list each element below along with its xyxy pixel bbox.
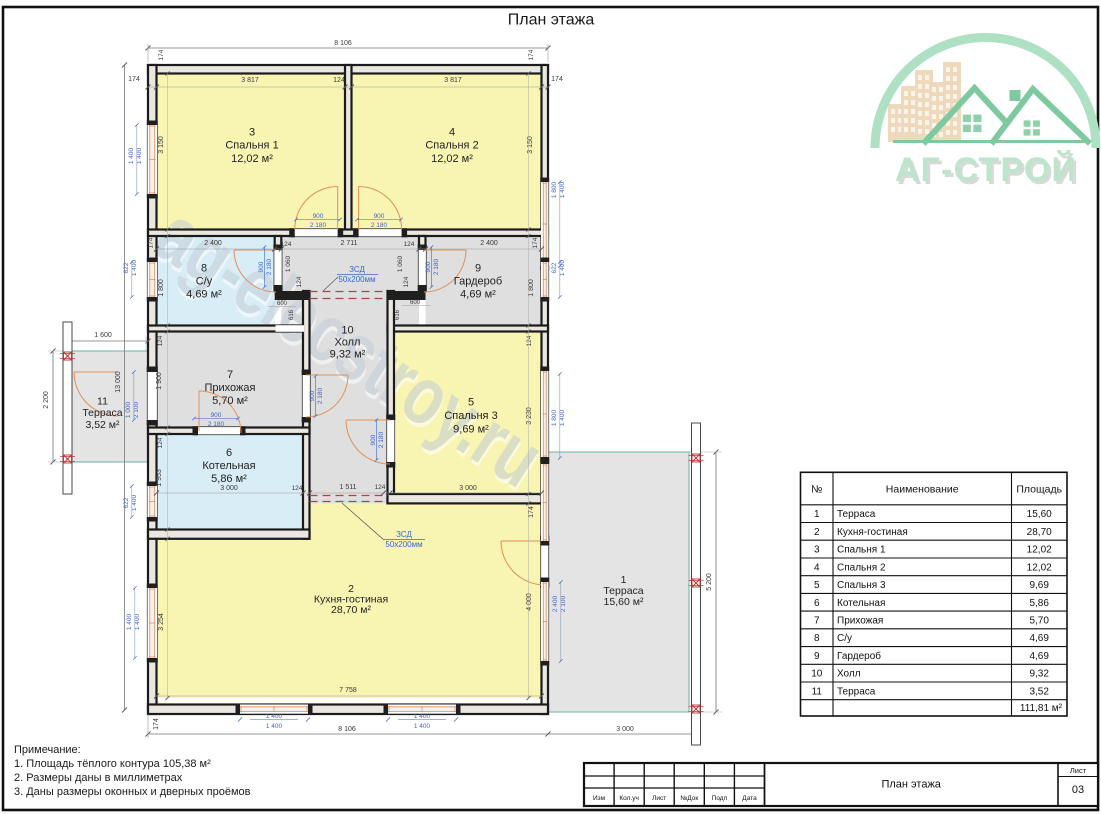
svg-text:5,86: 5,86 xyxy=(1029,598,1049,609)
svg-text:8: 8 xyxy=(814,633,820,644)
svg-text:1 800: 1 800 xyxy=(158,279,165,297)
svg-text:1 600: 1 600 xyxy=(94,332,112,339)
svg-text:№Док: №Док xyxy=(680,795,698,802)
svg-text:124: 124 xyxy=(526,335,533,346)
svg-text:3,52 м²: 3,52 м² xyxy=(85,419,120,431)
svg-text:9,69: 9,69 xyxy=(1029,580,1049,591)
svg-text:4,69 м²: 4,69 м² xyxy=(460,289,496,301)
svg-text:622: 622 xyxy=(123,497,130,508)
svg-text:Спальня 3: Спальня 3 xyxy=(444,410,497,422)
svg-text:5: 5 xyxy=(468,397,474,409)
svg-text:174: 174 xyxy=(158,49,165,60)
svg-text:7: 7 xyxy=(814,616,820,627)
svg-text:3: 3 xyxy=(814,545,820,556)
svg-text:2: 2 xyxy=(814,527,820,538)
svg-text:3. Даны размеры оконных и двер: 3. Даны размеры оконных и дверных проёмо… xyxy=(14,786,251,798)
svg-text:600: 600 xyxy=(277,301,288,307)
svg-text:2 180: 2 180 xyxy=(378,431,385,448)
svg-text:616: 616 xyxy=(289,309,295,320)
svg-text:Прихожая: Прихожая xyxy=(837,616,883,627)
svg-text:9: 9 xyxy=(814,651,820,662)
svg-text:Котельная: Котельная xyxy=(837,598,885,609)
svg-text:124: 124 xyxy=(375,484,386,491)
svg-text:Гардероб: Гардероб xyxy=(837,650,881,662)
svg-text:600: 600 xyxy=(410,300,421,306)
svg-text:124: 124 xyxy=(404,241,415,248)
svg-text:1 800: 1 800 xyxy=(551,181,558,198)
svg-text:Площадь: Площадь xyxy=(1016,484,1062,496)
svg-text:6: 6 xyxy=(814,598,820,609)
svg-text:ЗСД: ЗСД xyxy=(349,265,365,274)
svg-text:15,60 м²: 15,60 м² xyxy=(604,596,644,608)
svg-text:12,02 м²: 12,02 м² xyxy=(431,153,473,165)
svg-text:Терраса: Терраса xyxy=(82,407,122,419)
svg-text:4,69 м²: 4,69 м² xyxy=(186,289,222,301)
svg-text:174: 174 xyxy=(128,76,140,83)
svg-text:5,70 м²: 5,70 м² xyxy=(212,395,248,407)
svg-text:5,86 м²: 5,86 м² xyxy=(211,473,247,485)
svg-text:124: 124 xyxy=(157,335,164,346)
svg-text:Спальня 2: Спальня 2 xyxy=(425,140,478,152)
svg-text:174: 174 xyxy=(528,506,535,518)
svg-text:124: 124 xyxy=(403,276,410,287)
svg-text:3,52: 3,52 xyxy=(1029,686,1049,697)
svg-text:1 800: 1 800 xyxy=(551,409,558,426)
svg-text:Наименование: Наименование xyxy=(886,484,959,496)
svg-text:3 000: 3 000 xyxy=(616,726,634,733)
svg-text:Котельная: Котельная xyxy=(202,460,255,472)
svg-text:900: 900 xyxy=(309,390,316,401)
svg-text:9: 9 xyxy=(475,263,481,275)
svg-text:Подп: Подп xyxy=(712,795,728,802)
svg-text:1 060: 1 060 xyxy=(285,255,292,272)
svg-text:4: 4 xyxy=(814,562,820,573)
svg-text:4,69: 4,69 xyxy=(1029,651,1049,662)
svg-text:124: 124 xyxy=(157,437,164,448)
svg-text:1 800: 1 800 xyxy=(528,279,535,297)
svg-text:900: 900 xyxy=(211,412,222,419)
svg-text:616: 616 xyxy=(395,309,401,320)
svg-text:5: 5 xyxy=(814,580,820,591)
svg-text:1 060: 1 060 xyxy=(397,255,404,272)
svg-text:4: 4 xyxy=(449,127,455,139)
svg-text:124: 124 xyxy=(296,276,303,287)
svg-text:2 200: 2 200 xyxy=(43,391,50,409)
svg-text:10: 10 xyxy=(811,669,823,680)
svg-text:Спальня 1: Спальня 1 xyxy=(837,545,886,556)
svg-text:2 400: 2 400 xyxy=(204,240,222,247)
svg-text:8 106: 8 106 xyxy=(334,40,352,47)
svg-text:2 400: 2 400 xyxy=(552,595,559,612)
svg-text:Терраса: Терраса xyxy=(837,686,876,697)
svg-text:Примечание:: Примечание: xyxy=(14,744,81,756)
svg-text:12,02: 12,02 xyxy=(1027,562,1052,573)
svg-text:1 400: 1 400 xyxy=(414,723,431,730)
svg-text:1 400: 1 400 xyxy=(128,147,135,164)
svg-text:28,70: 28,70 xyxy=(1027,527,1052,538)
svg-text:Дата: Дата xyxy=(742,795,757,802)
svg-text:Прихожая: Прихожая xyxy=(205,382,256,394)
svg-text:50х200мм: 50х200мм xyxy=(385,540,422,549)
svg-text:1: 1 xyxy=(814,509,820,520)
svg-text:1 511: 1 511 xyxy=(340,484,357,491)
svg-text:1 400: 1 400 xyxy=(126,613,133,630)
svg-text:15,60: 15,60 xyxy=(1027,509,1052,520)
svg-text:9,32 м²: 9,32 м² xyxy=(330,349,366,361)
svg-text:Спальня 1: Спальня 1 xyxy=(225,140,278,152)
svg-text:1. Площадь тёплого контура 105: 1. Площадь тёплого контура 105,38 м² xyxy=(14,758,211,770)
svg-text:1 400: 1 400 xyxy=(266,723,283,730)
svg-text:622: 622 xyxy=(551,262,558,273)
svg-text:13 000: 13 000 xyxy=(115,371,122,393)
svg-text:2 400: 2 400 xyxy=(480,240,498,247)
svg-text:111,81 м²: 111,81 м² xyxy=(1020,703,1063,714)
svg-text:С/у: С/у xyxy=(837,633,852,644)
svg-text:8 106: 8 106 xyxy=(338,726,356,733)
svg-text:3 150: 3 150 xyxy=(158,136,165,154)
svg-text:174: 174 xyxy=(153,718,160,730)
svg-text:2 180: 2 180 xyxy=(433,258,440,275)
svg-text:900: 900 xyxy=(313,213,324,220)
svg-text:ЗСД: ЗСД xyxy=(396,530,412,539)
svg-text:Кол.уч: Кол.уч xyxy=(619,795,639,802)
svg-text:2 180: 2 180 xyxy=(310,222,327,229)
svg-text:12,02: 12,02 xyxy=(1027,545,1052,556)
svg-text:12,02 м²: 12,02 м² xyxy=(231,153,273,165)
svg-text:4,69: 4,69 xyxy=(1029,633,1049,644)
svg-text:900: 900 xyxy=(370,434,377,445)
svg-text:2 180: 2 180 xyxy=(371,222,388,229)
svg-text:АГ-СТРОЙ: АГ-СТРОЙ xyxy=(895,150,1077,189)
svg-text:3 817: 3 817 xyxy=(241,77,259,84)
svg-text:8: 8 xyxy=(201,263,207,275)
svg-text:174: 174 xyxy=(148,237,155,248)
svg-text:124: 124 xyxy=(292,485,303,492)
svg-text:174: 174 xyxy=(528,49,535,60)
svg-text:11: 11 xyxy=(812,686,823,697)
svg-text:3 000: 3 000 xyxy=(459,485,477,492)
svg-text:1 400: 1 400 xyxy=(266,713,283,720)
svg-text:Лист: Лист xyxy=(652,795,666,802)
svg-text:2 711: 2 711 xyxy=(341,240,358,247)
svg-text:Гардероб: Гардероб xyxy=(454,276,502,288)
svg-text:Лист: Лист xyxy=(1070,766,1087,775)
svg-text:6: 6 xyxy=(226,447,232,459)
svg-text:С/у: С/у xyxy=(196,276,213,288)
svg-text:2 180: 2 180 xyxy=(317,387,324,404)
svg-text:1 400: 1 400 xyxy=(414,713,431,720)
svg-text:124: 124 xyxy=(333,77,345,84)
svg-text:900: 900 xyxy=(374,213,385,220)
svg-text:2 180: 2 180 xyxy=(208,421,225,428)
svg-text:174: 174 xyxy=(551,76,563,83)
svg-text:3 150: 3 150 xyxy=(527,136,534,154)
svg-text:11: 11 xyxy=(97,396,108,408)
svg-text:3 230: 3 230 xyxy=(526,407,533,425)
svg-text:План этажа: План этажа xyxy=(881,779,941,791)
svg-text:Спальня 3: Спальня 3 xyxy=(837,580,886,591)
svg-text:Спальня 2: Спальня 2 xyxy=(837,562,886,573)
svg-text:3: 3 xyxy=(249,127,255,139)
svg-text:№: № xyxy=(811,484,822,496)
svg-text:Изм: Изм xyxy=(593,795,606,802)
svg-text:Холл: Холл xyxy=(335,337,361,349)
svg-text:03: 03 xyxy=(1072,784,1084,796)
svg-text:900: 900 xyxy=(425,261,432,272)
svg-text:3 000: 3 000 xyxy=(220,485,238,492)
svg-text:7: 7 xyxy=(227,369,233,381)
svg-text:622: 622 xyxy=(123,262,130,273)
svg-text:7 758: 7 758 xyxy=(339,687,357,694)
svg-text:3 817: 3 817 xyxy=(444,77,462,84)
svg-text:9,32: 9,32 xyxy=(1029,669,1049,680)
svg-text:9,69 м²: 9,69 м² xyxy=(453,424,489,436)
svg-text:5,70: 5,70 xyxy=(1029,616,1049,627)
svg-text:10: 10 xyxy=(341,325,353,337)
svg-text:5 200: 5 200 xyxy=(706,573,713,591)
svg-text:Терраса: Терраса xyxy=(837,509,876,520)
svg-text:1 900: 1 900 xyxy=(156,372,163,390)
svg-text:174: 174 xyxy=(532,237,539,248)
svg-text:Холл: Холл xyxy=(837,669,861,680)
svg-text:28,70 м²: 28,70 м² xyxy=(331,604,371,616)
svg-text:2 180: 2 180 xyxy=(266,258,273,275)
svg-text:50х200мм: 50х200мм xyxy=(338,275,375,284)
svg-text:1 000: 1 000 xyxy=(125,401,132,418)
svg-text:4 000: 4 000 xyxy=(526,593,533,611)
svg-text:2. Размеры даны в миллиметрах: 2. Размеры даны в миллиметрах xyxy=(14,772,183,784)
svg-text:1 953: 1 953 xyxy=(156,469,163,487)
svg-text:3 254: 3 254 xyxy=(158,613,165,631)
svg-text:План этажа: План этажа xyxy=(508,12,595,29)
svg-text:900: 900 xyxy=(258,261,265,272)
svg-text:Кухня-гостиная: Кухня-гостиная xyxy=(837,527,908,538)
svg-text:124: 124 xyxy=(281,241,292,248)
